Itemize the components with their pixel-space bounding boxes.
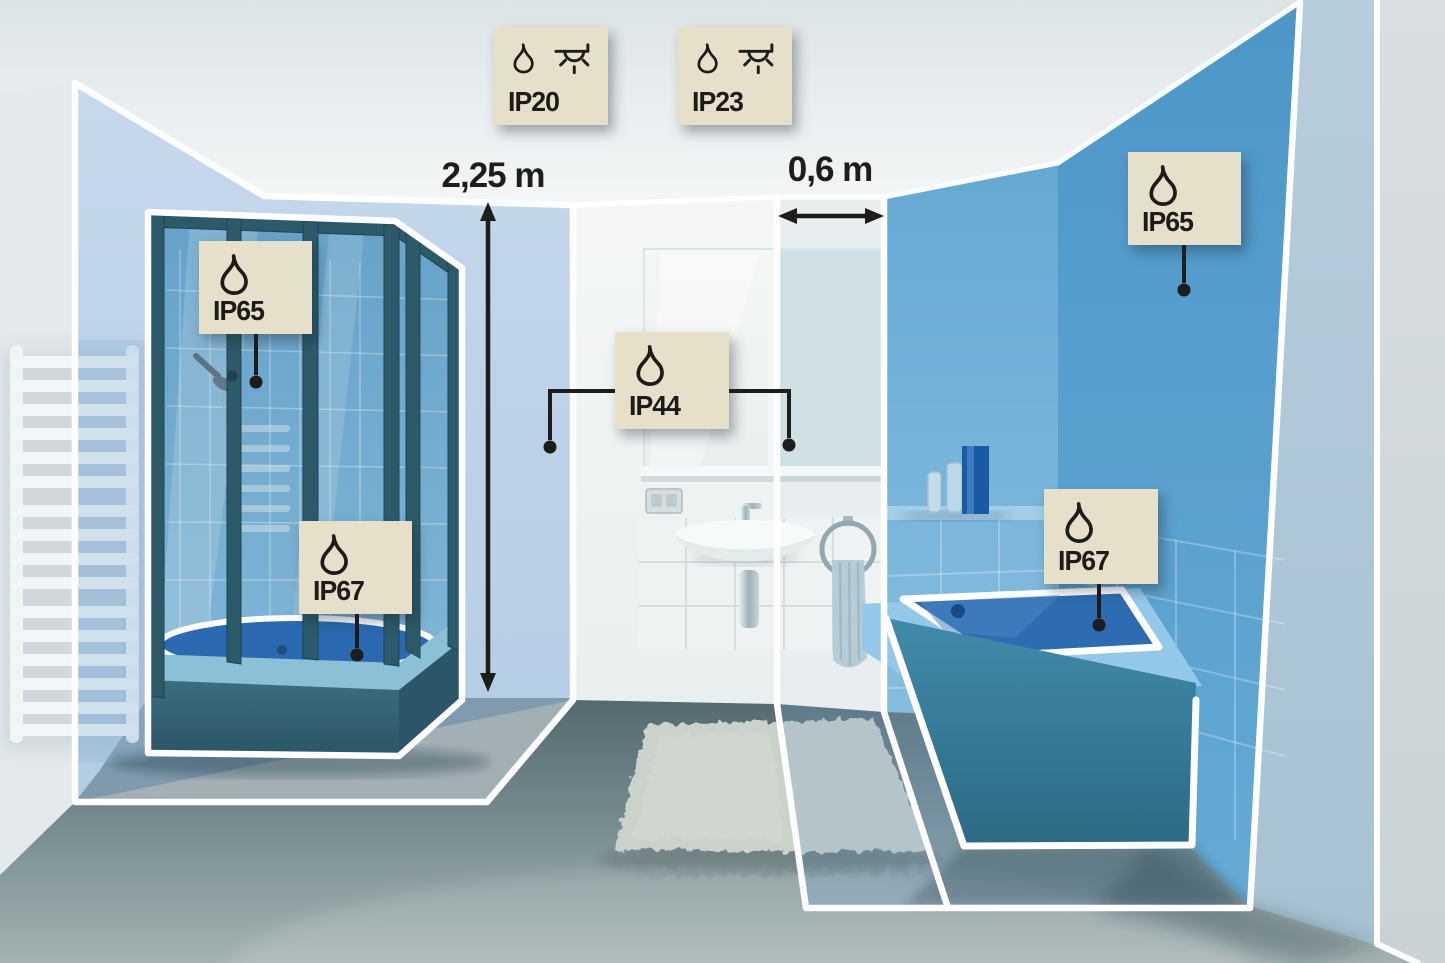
ceiling-light-icon — [553, 37, 596, 81]
badge-icons — [213, 251, 300, 297]
basin-zone-width-label: 0,6 m — [768, 152, 892, 187]
badge-ip20: IP20 — [494, 27, 608, 125]
badge-ip65-shower: IP65 — [199, 241, 312, 334]
door-handle — [227, 371, 238, 382]
badge-label: IP67 — [313, 577, 396, 605]
water-drop-icon — [692, 37, 721, 79]
water-drop-icon — [313, 531, 353, 577]
badge-label: IP65 — [213, 297, 296, 325]
ceiling-height-label: 2,25 m — [408, 158, 578, 193]
water-drop-icon — [508, 37, 537, 79]
badge-label: IP65 — [1142, 208, 1225, 236]
badge-icons — [1142, 162, 1229, 208]
ceiling-light-icon — [737, 37, 780, 81]
badge-ip65-right-wall: IP65 — [1128, 152, 1241, 245]
badge-ip67-bathtub: IP67 — [1044, 489, 1158, 584]
badge-icons — [313, 531, 400, 577]
water-drop-icon — [213, 251, 253, 297]
width-arrow — [778, 208, 884, 224]
badge-ip44-washbasin: IP44 — [615, 332, 729, 429]
water-drop-icon — [1142, 162, 1182, 208]
bathroom-ip-zones-figure: 2,25 m 0,6 m IP20 IP23 — [0, 0, 1445, 963]
badge-icons — [1058, 499, 1146, 545]
water-drop-icon — [1058, 499, 1098, 545]
badge-ip67-shower-tray: IP67 — [299, 521, 412, 614]
badge-icons — [692, 37, 780, 81]
badge-label: IP44 — [629, 392, 713, 420]
badge-label: IP20 — [508, 88, 592, 116]
badge-ip23: IP23 — [678, 27, 792, 125]
badge-label: IP67 — [1058, 547, 1142, 575]
badge-icons — [629, 342, 717, 388]
bathroom-scene — [0, 0, 1445, 963]
badge-icons — [508, 37, 596, 81]
wall-socket — [646, 489, 682, 513]
badge-label: IP23 — [692, 88, 776, 116]
water-drop-icon — [629, 342, 669, 388]
